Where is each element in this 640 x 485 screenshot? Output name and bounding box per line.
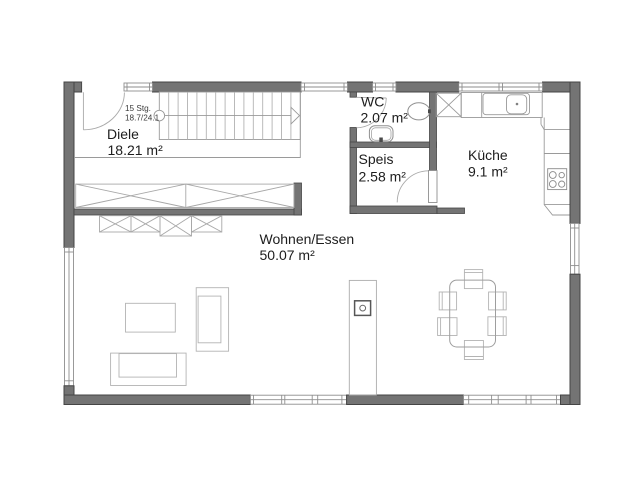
svg-text:WC: WC	[361, 94, 384, 110]
svg-text:15 Stg.: 15 Stg.	[125, 104, 151, 113]
svg-text:Diele: Diele	[107, 126, 139, 142]
svg-text:2.07 m²: 2.07 m²	[361, 110, 409, 126]
svg-text:18.7/24.1: 18.7/24.1	[125, 113, 160, 122]
svg-text:18.21 m²: 18.21 m²	[108, 142, 164, 158]
svg-text:50.07 m²: 50.07 m²	[260, 247, 316, 263]
svg-text:2.58 m²: 2.58 m²	[359, 169, 407, 185]
svg-text:Wohnen/Essen: Wohnen/Essen	[260, 231, 355, 247]
svg-text:9.1 m²: 9.1 m²	[468, 164, 508, 180]
svg-text:Speis: Speis	[359, 151, 394, 167]
svg-text:Küche: Küche	[468, 147, 508, 163]
